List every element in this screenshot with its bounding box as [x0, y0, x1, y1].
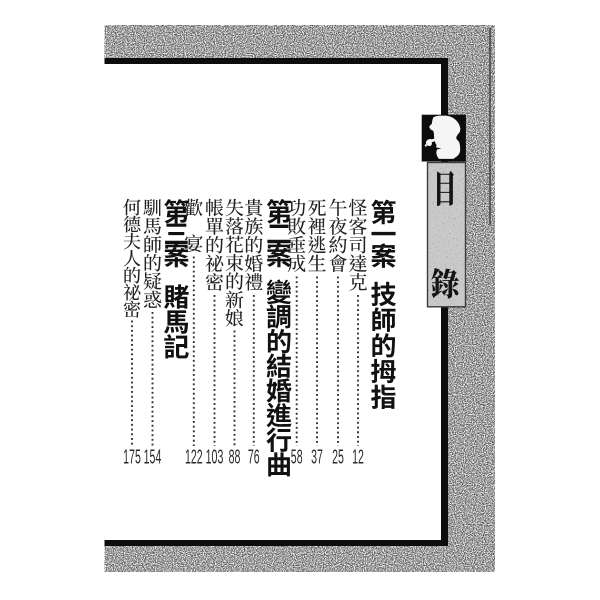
svg-text:122: 122: [185, 447, 203, 468]
svg-text:154: 154: [144, 447, 162, 468]
svg-text:76: 76: [248, 447, 260, 468]
svg-text:103: 103: [206, 447, 224, 468]
svg-text:25: 25: [332, 447, 344, 468]
svg-text:88: 88: [229, 447, 241, 468]
svg-text:175: 175: [123, 447, 141, 468]
svg-text:58: 58: [291, 447, 303, 468]
svg-text:12: 12: [352, 447, 364, 468]
svg-text:37: 37: [311, 447, 323, 468]
